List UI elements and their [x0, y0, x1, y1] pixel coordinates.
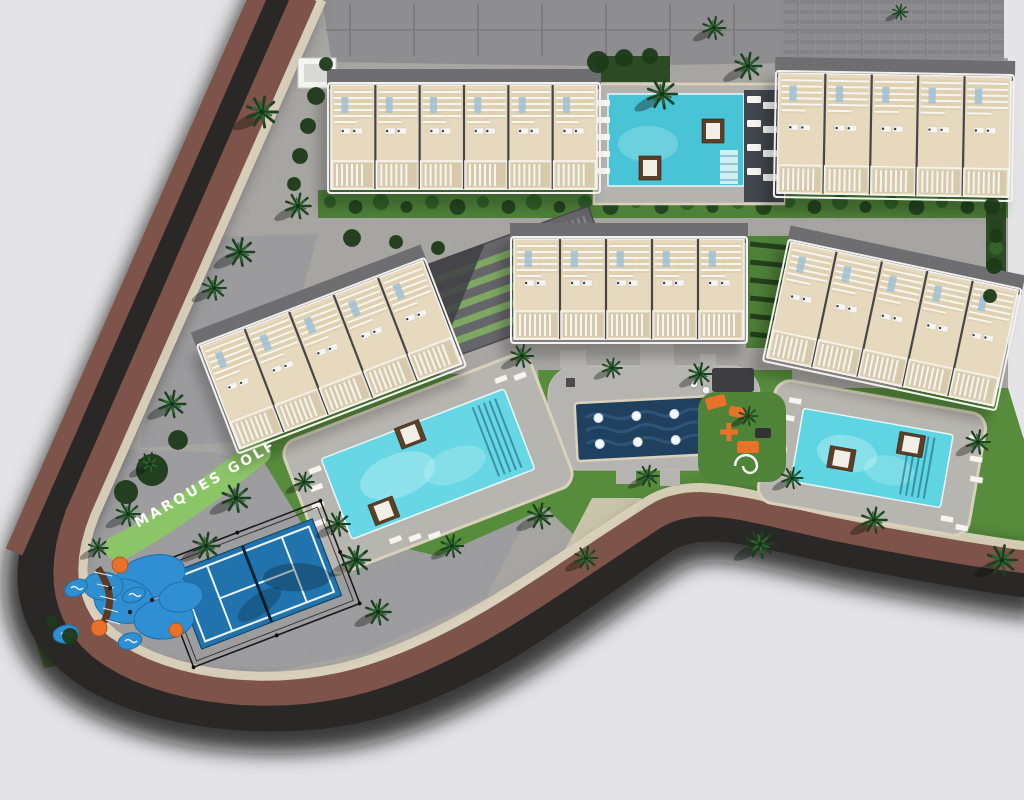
render-root	[0, 0, 1024, 800]
site-plan-render: MARQUES GOLF	[0, 0, 1024, 800]
building-top-left	[318, 69, 601, 207]
building-mid-center	[501, 223, 748, 357]
cabana-bed	[896, 431, 925, 457]
site-plan: MARQUES GOLF	[0, 0, 1024, 800]
building-top-right	[764, 57, 1016, 215]
outdoor-gym	[698, 392, 786, 482]
cabana-bed	[827, 446, 856, 472]
